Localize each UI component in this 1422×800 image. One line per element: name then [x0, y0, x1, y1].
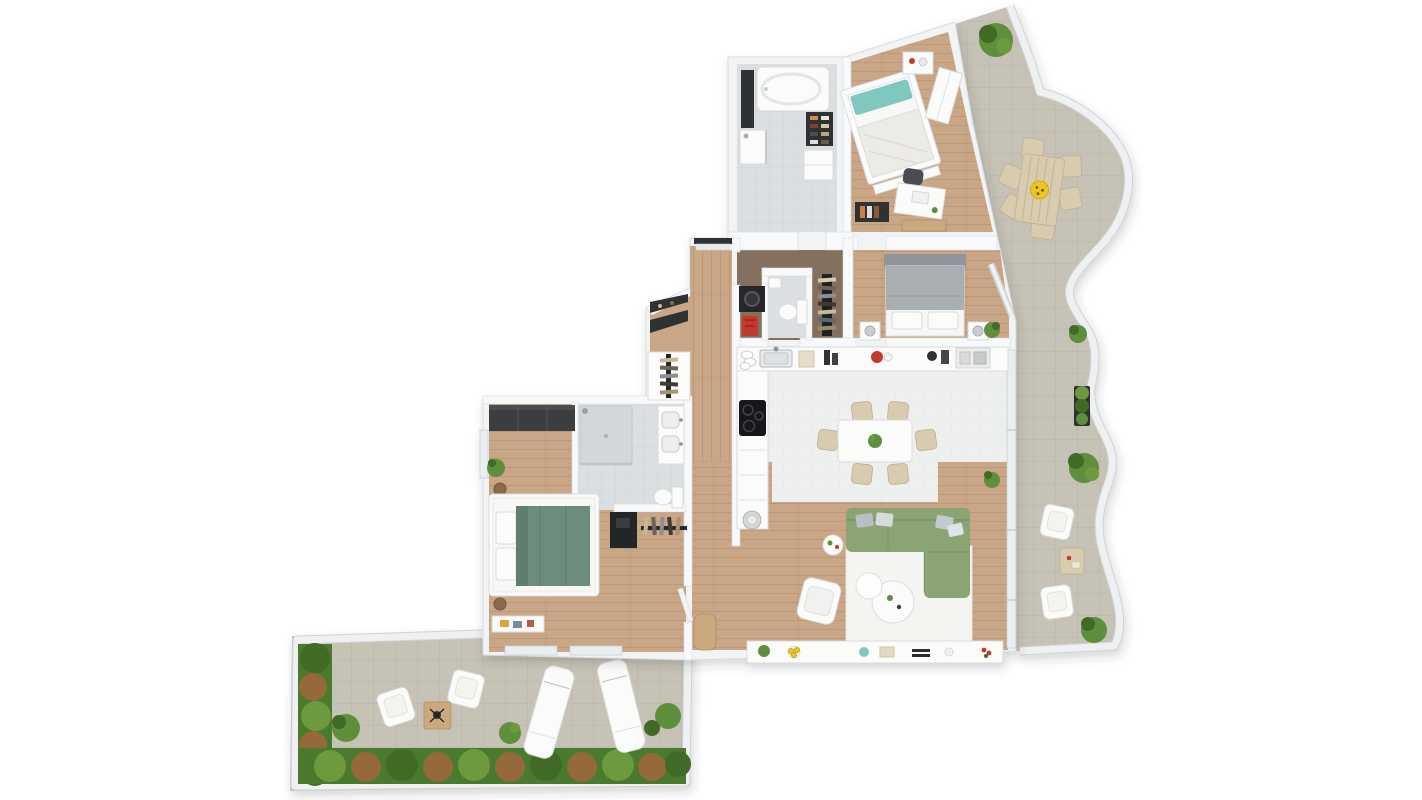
- lounge-armchair-2: [1040, 584, 1074, 620]
- cup: [945, 648, 953, 656]
- entry-door: [696, 244, 730, 250]
- master-pillow: [928, 312, 958, 329]
- nightstand-decor-red: [909, 58, 915, 64]
- wall-bed2-bottom: [853, 236, 858, 250]
- entry-threshold: [694, 238, 732, 244]
- wall-bedroom1-east-2: [684, 622, 692, 660]
- east-terrace-planter: [1074, 386, 1090, 426]
- dressing-vanity: [610, 512, 637, 548]
- coffee-table-small: [856, 573, 882, 599]
- wall-bed2-master: [886, 236, 997, 250]
- bedroom1-window-south-2: [570, 646, 622, 655]
- tray-book: [513, 621, 522, 628]
- remote: [912, 649, 930, 652]
- master-pillow: [892, 312, 922, 329]
- cutting-board: [799, 351, 814, 367]
- nightstand: [903, 52, 933, 74]
- laptop: [912, 191, 929, 204]
- small-appliance: [927, 351, 937, 361]
- sideboard: [747, 641, 1003, 663]
- white-jug: [884, 353, 892, 361]
- sideboard-plant: [758, 645, 770, 657]
- wall-kitchen-north-3: [886, 338, 1010, 347]
- bedroom1-window-south-1: [505, 646, 557, 655]
- hedge-bottom: [300, 748, 691, 784]
- floorplan-stage: Top-down 3D apartment floor plan render …: [0, 0, 1422, 800]
- toilet-bowl: [654, 489, 672, 505]
- wc-washbasin: [769, 278, 781, 288]
- sofa-pillow: [855, 513, 874, 528]
- kitchen-jar: [824, 350, 830, 365]
- toilet-bowl: [779, 304, 797, 320]
- table-decor-plant: [887, 595, 893, 601]
- pillow: [496, 548, 516, 580]
- small-appliance: [941, 350, 949, 364]
- tray-book: [527, 620, 534, 627]
- living-glass-wall: [1007, 350, 1016, 648]
- wood-bench: [902, 220, 946, 231]
- lamp: [973, 326, 983, 336]
- dining-chair: [887, 463, 909, 485]
- wall-wc-north: [762, 268, 812, 276]
- large-terrace-plant: [979, 23, 1013, 57]
- apartment: [480, 22, 1016, 663]
- red-kettle: [871, 351, 883, 363]
- lamp: [865, 326, 875, 336]
- toilet-tank: [797, 300, 807, 324]
- toilet-tank: [672, 487, 683, 508]
- vanity-sink: [662, 412, 679, 428]
- book: [880, 647, 894, 657]
- kitchen-jar: [832, 353, 838, 365]
- dining-chair: [851, 463, 873, 485]
- side-table-round: [823, 535, 843, 555]
- round-nightstand: [494, 598, 506, 610]
- wall-bedroom1-east-1: [684, 396, 692, 586]
- lounge-armchair-1: [1039, 503, 1075, 541]
- floorplan-canvas: Top-down 3D apartment floor plan render …: [0, 0, 1422, 800]
- faucet: [774, 347, 779, 352]
- sofa-pillow: [875, 512, 893, 527]
- shower-head: [582, 408, 588, 414]
- bedroom1-window-west: [480, 430, 488, 478]
- dining-chair: [817, 429, 840, 452]
- teal-dish: [859, 647, 869, 657]
- lounge-side-table: [1060, 548, 1084, 574]
- master-duvet: [886, 266, 964, 310]
- tray-book: [500, 620, 509, 627]
- tall-cabinet: [741, 70, 754, 128]
- outdoor-chair: [1058, 186, 1082, 210]
- wall-master-west: [843, 238, 853, 340]
- wall-bath-bed2: [843, 57, 851, 238]
- wall-hall-east-1: [732, 238, 740, 252]
- vanity-sink: [662, 436, 679, 452]
- red-flowers: [982, 648, 987, 653]
- terrace-cube-table: [424, 702, 451, 729]
- round-nightstand: [494, 483, 506, 495]
- wooden-stool: [694, 614, 716, 650]
- pillow: [496, 512, 516, 544]
- dining-chair: [915, 429, 938, 452]
- nightstand-lamp: [919, 58, 927, 66]
